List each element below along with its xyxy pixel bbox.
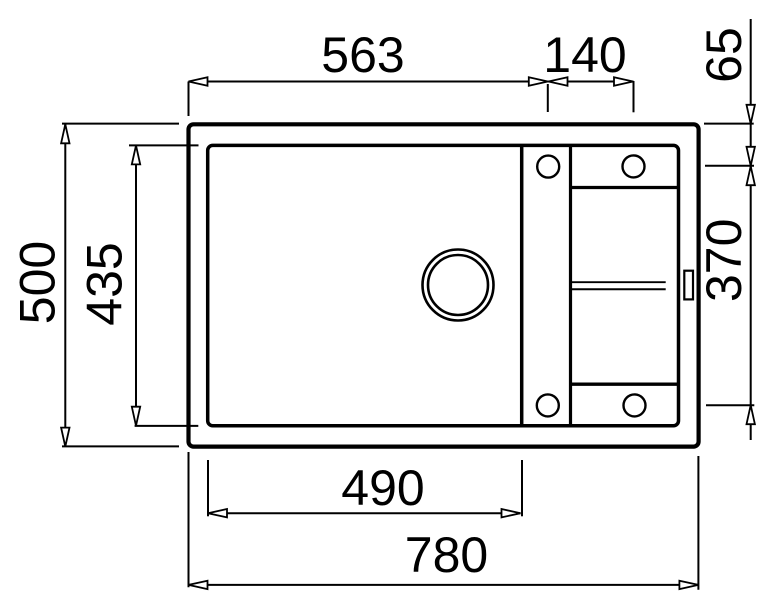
svg-text:780: 780 [405,527,488,583]
svg-text:563: 563 [321,27,404,83]
svg-text:500: 500 [9,241,65,324]
svg-text:65: 65 [696,27,752,83]
svg-text:490: 490 [341,460,424,516]
svg-text:140: 140 [543,27,626,83]
svg-text:370: 370 [696,219,752,302]
svg-text:435: 435 [77,242,133,325]
